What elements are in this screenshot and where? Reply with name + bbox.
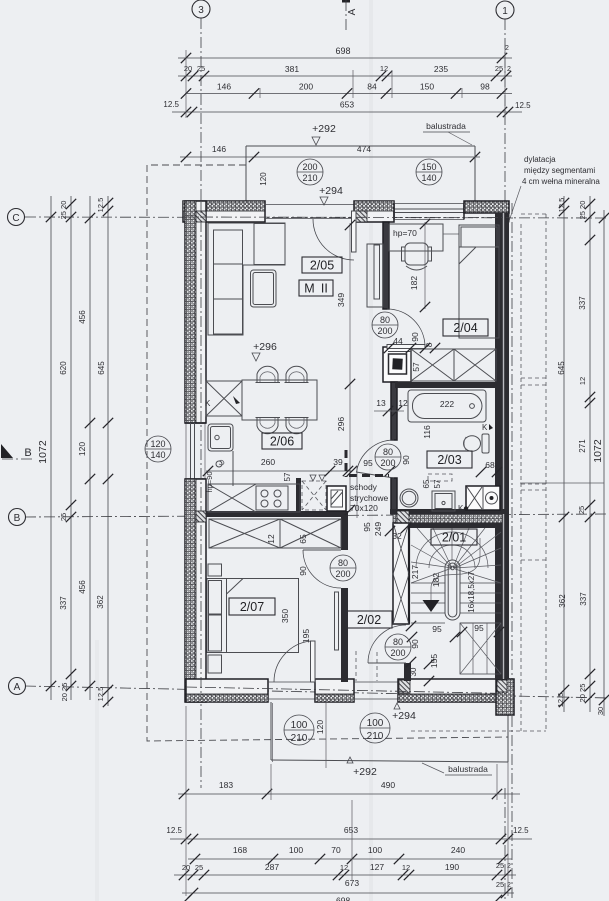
svg-text:456: 456 [78, 580, 87, 594]
svg-text:100: 100 [367, 718, 384, 729]
svg-text:120: 120 [150, 439, 165, 449]
svg-text:381: 381 [285, 64, 299, 74]
svg-text:120: 120 [259, 172, 268, 186]
svg-text:A: A [347, 8, 358, 15]
svg-text:2/02: 2/02 [357, 613, 381, 627]
svg-text:95: 95 [362, 522, 372, 532]
svg-text:25: 25 [59, 513, 68, 521]
svg-text:350: 350 [280, 609, 290, 623]
svg-text:80: 80 [338, 558, 348, 568]
svg-text:2/06: 2/06 [270, 434, 294, 448]
svg-text:12.5: 12.5 [515, 101, 531, 110]
svg-text:120: 120 [77, 442, 87, 456]
svg-text:hp=90: hp=90 [205, 471, 214, 492]
svg-text:25 20: 25 20 [578, 201, 587, 220]
svg-text:146: 146 [212, 144, 226, 154]
svg-text:12: 12 [402, 863, 410, 872]
svg-text:20 25: 20 25 [578, 684, 587, 703]
svg-text:140: 140 [421, 173, 436, 183]
svg-text:A: A [14, 682, 21, 693]
svg-text:168: 168 [233, 845, 247, 855]
svg-text:25: 25 [495, 64, 503, 73]
svg-text:155: 155 [429, 654, 439, 668]
svg-text:2/07: 2/07 [240, 600, 264, 614]
svg-text:+292: +292 [353, 766, 377, 778]
svg-text:653: 653 [344, 825, 358, 835]
svg-text:190: 190 [445, 862, 459, 872]
svg-text:25: 25 [195, 863, 203, 872]
svg-text:287: 287 [265, 862, 279, 872]
svg-text:200: 200 [390, 648, 405, 658]
svg-text:K: K [205, 399, 211, 408]
svg-text:12.5: 12.5 [513, 826, 529, 835]
svg-text:+296: +296 [253, 341, 277, 353]
svg-text:25: 25 [577, 506, 586, 514]
svg-text:235: 235 [434, 64, 448, 74]
svg-text:12: 12 [380, 64, 388, 73]
svg-text:strychowe: strychowe [350, 493, 389, 503]
svg-text:100: 100 [368, 845, 382, 855]
svg-text:98: 98 [480, 82, 490, 92]
svg-text:182: 182 [409, 276, 419, 290]
svg-text:12: 12 [266, 534, 276, 544]
svg-text:249: 249 [373, 522, 383, 536]
svg-text:20 25: 20 25 [60, 683, 69, 702]
svg-text:65: 65 [422, 479, 431, 488]
svg-text:68: 68 [485, 460, 495, 470]
svg-text:80: 80 [383, 447, 393, 457]
svg-text:90: 90 [410, 332, 420, 342]
svg-text:2: 2 [507, 863, 511, 870]
svg-text:25: 25 [496, 880, 504, 889]
svg-text:337: 337 [578, 296, 587, 310]
svg-text:12.5: 12.5 [166, 826, 182, 835]
svg-text:653: 653 [340, 100, 354, 110]
svg-text:210: 210 [291, 733, 308, 744]
svg-text:12.5: 12.5 [557, 198, 566, 213]
svg-text:12.5: 12.5 [556, 693, 565, 708]
svg-text:349: 349 [336, 293, 346, 307]
svg-text:2/01: 2/01 [442, 530, 466, 544]
svg-text:200: 200 [302, 162, 317, 172]
svg-text:140: 140 [150, 450, 165, 460]
svg-text:57: 57 [433, 479, 442, 488]
svg-text:337: 337 [59, 596, 68, 610]
svg-text:balustrada: balustrada [448, 764, 488, 774]
svg-text:32: 32 [392, 531, 402, 541]
svg-text:127: 127 [370, 862, 384, 872]
svg-text:200: 200 [380, 458, 395, 468]
svg-text:100: 100 [289, 845, 303, 855]
svg-text:3: 3 [198, 5, 204, 16]
svg-text:620: 620 [59, 361, 68, 375]
svg-text:12: 12 [578, 377, 587, 385]
svg-text:84: 84 [367, 82, 377, 92]
svg-text:57: 57 [283, 472, 292, 481]
svg-text:B: B [24, 447, 31, 459]
svg-text:12: 12 [398, 398, 408, 408]
svg-text:65: 65 [298, 534, 308, 544]
svg-text:195: 195 [301, 629, 311, 643]
svg-text:150: 150 [420, 82, 434, 92]
svg-text:+294: +294 [392, 710, 416, 722]
svg-text:200: 200 [299, 82, 313, 92]
svg-text:240: 240 [451, 845, 465, 855]
svg-text:90: 90 [410, 639, 420, 649]
svg-text:95: 95 [432, 624, 442, 634]
svg-text:1072: 1072 [592, 439, 604, 463]
svg-text:90: 90 [401, 455, 411, 465]
svg-text:2: 2 [507, 66, 511, 73]
svg-text:1: 1 [502, 6, 508, 17]
svg-text:70: 70 [331, 845, 341, 855]
svg-text:balustrada: balustrada [426, 121, 466, 131]
svg-text:645: 645 [557, 361, 566, 375]
svg-text:116: 116 [422, 425, 432, 439]
svg-text:1072: 1072 [37, 440, 49, 464]
svg-text:362: 362 [558, 594, 567, 608]
svg-text:12.5: 12.5 [96, 198, 105, 213]
svg-text:260: 260 [261, 457, 275, 467]
svg-text:20: 20 [184, 64, 192, 73]
svg-text:44: 44 [393, 336, 403, 346]
svg-text:2/05: 2/05 [310, 258, 334, 272]
svg-text:2/03: 2/03 [437, 453, 461, 467]
svg-text:95: 95 [363, 458, 373, 468]
svg-text:645: 645 [97, 361, 106, 375]
svg-text:80: 80 [380, 315, 390, 325]
svg-text:K: K [458, 504, 464, 513]
svg-text:183: 183 [219, 780, 233, 790]
svg-text:222: 222 [440, 399, 454, 409]
svg-text:57: 57 [411, 362, 421, 372]
svg-text:13: 13 [376, 398, 386, 408]
svg-text:150: 150 [421, 162, 436, 172]
svg-text:między segmentami: między segmentami [524, 166, 595, 175]
svg-text:146: 146 [217, 82, 231, 92]
svg-text:30: 30 [409, 667, 418, 676]
svg-text:490: 490 [381, 780, 395, 790]
svg-text:25: 25 [496, 861, 504, 870]
svg-text:271: 271 [578, 439, 587, 453]
svg-text:217: 217 [410, 565, 420, 579]
svg-text:210: 210 [367, 731, 384, 742]
svg-text:80: 80 [393, 637, 403, 647]
svg-text:2/04: 2/04 [453, 321, 477, 335]
svg-text:456: 456 [78, 310, 87, 324]
svg-text:200: 200 [335, 569, 350, 579]
svg-text:25 20: 25 20 [59, 201, 68, 220]
svg-text:70x120: 70x120 [350, 503, 378, 513]
svg-text:100: 100 [291, 720, 308, 731]
svg-text:+292: +292 [312, 123, 336, 135]
svg-text:12.5: 12.5 [96, 687, 105, 702]
svg-text:4 cm wełna mineralna: 4 cm wełna mineralna [522, 177, 600, 186]
svg-text:25: 25 [197, 64, 205, 73]
svg-text:2: 2 [507, 882, 511, 889]
svg-text:337: 337 [579, 592, 588, 606]
svg-text:K: K [482, 423, 488, 432]
svg-text:16x18,5x27: 16x18,5x27 [467, 571, 476, 613]
svg-text:M II: M II [304, 281, 328, 295]
svg-text:698: 698 [336, 896, 350, 901]
svg-text:dylatacja: dylatacja [524, 155, 556, 164]
svg-text:12: 12 [340, 863, 348, 872]
svg-text:30: 30 [596, 707, 605, 715]
svg-text:120: 120 [315, 720, 325, 734]
svg-text:200: 200 [377, 326, 392, 336]
svg-text:698: 698 [335, 46, 350, 56]
svg-text:182: 182 [431, 573, 441, 587]
svg-text:39: 39 [333, 457, 343, 467]
svg-text:12.5: 12.5 [163, 100, 179, 109]
svg-text:90: 90 [298, 566, 308, 576]
svg-text:210: 210 [302, 173, 317, 183]
svg-text:schody: schody [350, 482, 378, 492]
svg-text:B: B [14, 513, 21, 524]
svg-text:95: 95 [474, 623, 484, 633]
svg-text:296: 296 [336, 417, 346, 431]
svg-text:hp=70: hp=70 [393, 228, 417, 238]
svg-text:362: 362 [96, 595, 105, 609]
svg-text:C: C [12, 213, 19, 224]
svg-text:2: 2 [505, 45, 509, 52]
svg-text:+294: +294 [319, 185, 343, 197]
